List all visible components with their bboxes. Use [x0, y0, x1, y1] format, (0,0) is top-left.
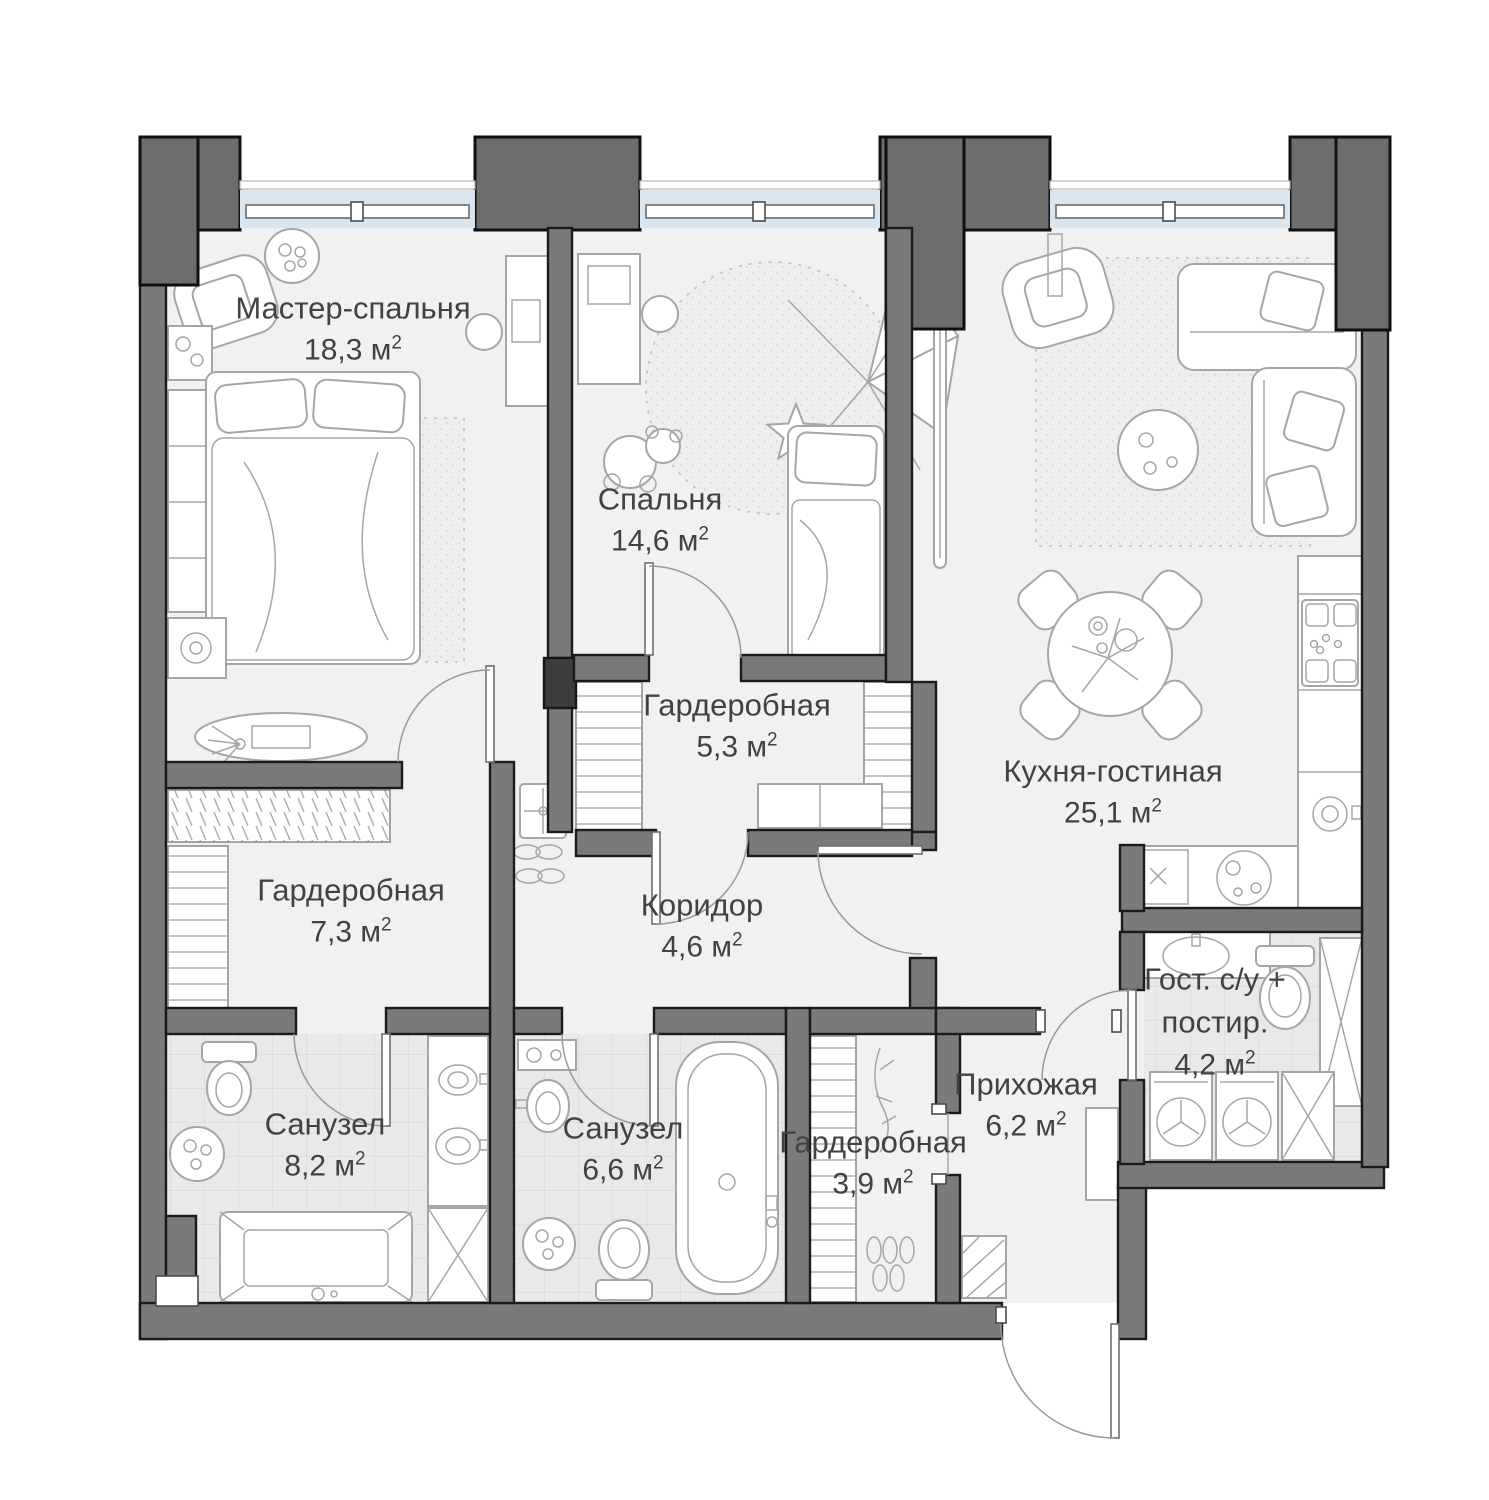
room-area: 6,6 м2	[563, 1150, 684, 1192]
room-name: Гардеробная	[643, 683, 831, 726]
dining-table	[1048, 592, 1172, 716]
room-name: Кухня-гостиная	[1003, 749, 1222, 792]
room-area: 8,2 м2	[265, 1146, 386, 1188]
room-label-kitchen-living: Кухня-гостиная 25,1 м2	[1003, 749, 1222, 834]
chair	[466, 314, 502, 350]
room-label-guest-bathroom: Гост. с/у + постир. 4,2 м2	[1124, 958, 1306, 1087]
room-area: 7,3 м2	[257, 912, 445, 954]
room-label-hallway: Прихожая 6,2 м2	[954, 1062, 1098, 1147]
room-label-bathroom-2: Санузел 6,6 м2	[563, 1106, 684, 1191]
toilet-icon	[599, 1220, 649, 1280]
coffee-table	[1118, 410, 1198, 490]
stool	[168, 618, 226, 678]
room-label-master-bedroom: Мастер-спальня 18,3 м2	[235, 286, 470, 371]
room-label-wardrobe-2: Гардеробная 7,3 м2	[257, 868, 445, 953]
room-name: Санузел	[563, 1106, 684, 1149]
room-label-wardrobe-3: Гардеробная 3,9 м2	[779, 1120, 967, 1205]
room-name: Гардеробная	[779, 1120, 967, 1163]
room-label-corridor: Коридор 4,6 м2	[641, 883, 763, 968]
room-name: Гост. с/у + постир.	[1124, 958, 1306, 1045]
room-area: 14,6 м2	[598, 521, 723, 563]
room-label-bathroom-1: Санузел 8,2 м2	[265, 1102, 386, 1187]
room-label-bedroom: Спальня 14,6 м2	[598, 477, 723, 562]
plant-icon	[265, 229, 319, 283]
entry-door-arc	[1001, 1324, 1115, 1438]
room-name: Санузел	[265, 1102, 386, 1145]
window-mullion	[1163, 202, 1175, 221]
toilet-icon	[202, 1042, 256, 1062]
plant-icon	[170, 1127, 224, 1181]
room-name: Прихожая	[954, 1062, 1098, 1105]
room-label-wardrobe-1: Гардеробная 5,3 м2	[643, 683, 831, 768]
window-mullion	[753, 202, 765, 221]
plant-icon	[523, 1218, 575, 1270]
floor-plan-page: Мастер-спальня 18,3 м2 Спальня 14,6 м2 Г…	[0, 0, 1489, 1500]
room-area: 5,3 м2	[643, 727, 831, 769]
room-name: Гардеробная	[257, 868, 445, 911]
bathtub-icon	[676, 1042, 778, 1294]
room-area: 3,9 м2	[779, 1164, 967, 1206]
room-area: 18,3 м2	[235, 330, 470, 372]
room-name: Коридор	[641, 883, 763, 926]
room-area: 6,2 м2	[954, 1106, 1098, 1148]
room-area: 4,6 м2	[641, 927, 763, 969]
bench	[195, 713, 367, 761]
room-name: Спальня	[598, 477, 723, 520]
kids-chair	[642, 296, 678, 332]
room-name: Мастер-спальня	[235, 286, 470, 329]
dresser	[168, 326, 212, 380]
window-mullion	[351, 202, 363, 221]
room-area: 25,1 м2	[1003, 793, 1222, 835]
wardrobe-unit	[168, 390, 206, 612]
vanity	[428, 1036, 488, 1206]
entry-door-leaf	[1111, 1324, 1119, 1438]
windows	[240, 181, 1290, 228]
room-area: 4,2 м2	[1124, 1044, 1306, 1086]
